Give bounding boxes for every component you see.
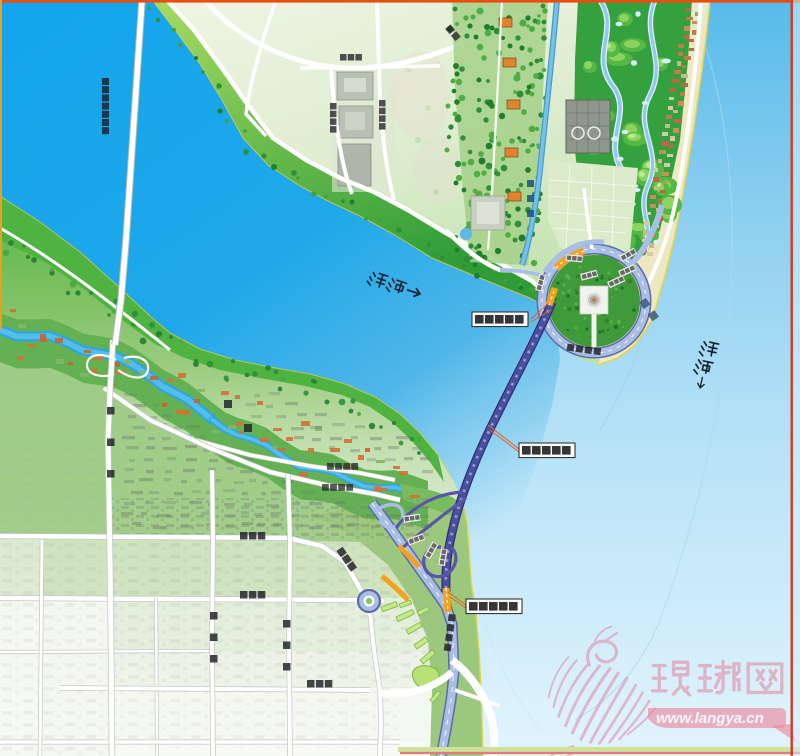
svg-text:www.langya.cn: www.langya.cn xyxy=(656,710,764,727)
